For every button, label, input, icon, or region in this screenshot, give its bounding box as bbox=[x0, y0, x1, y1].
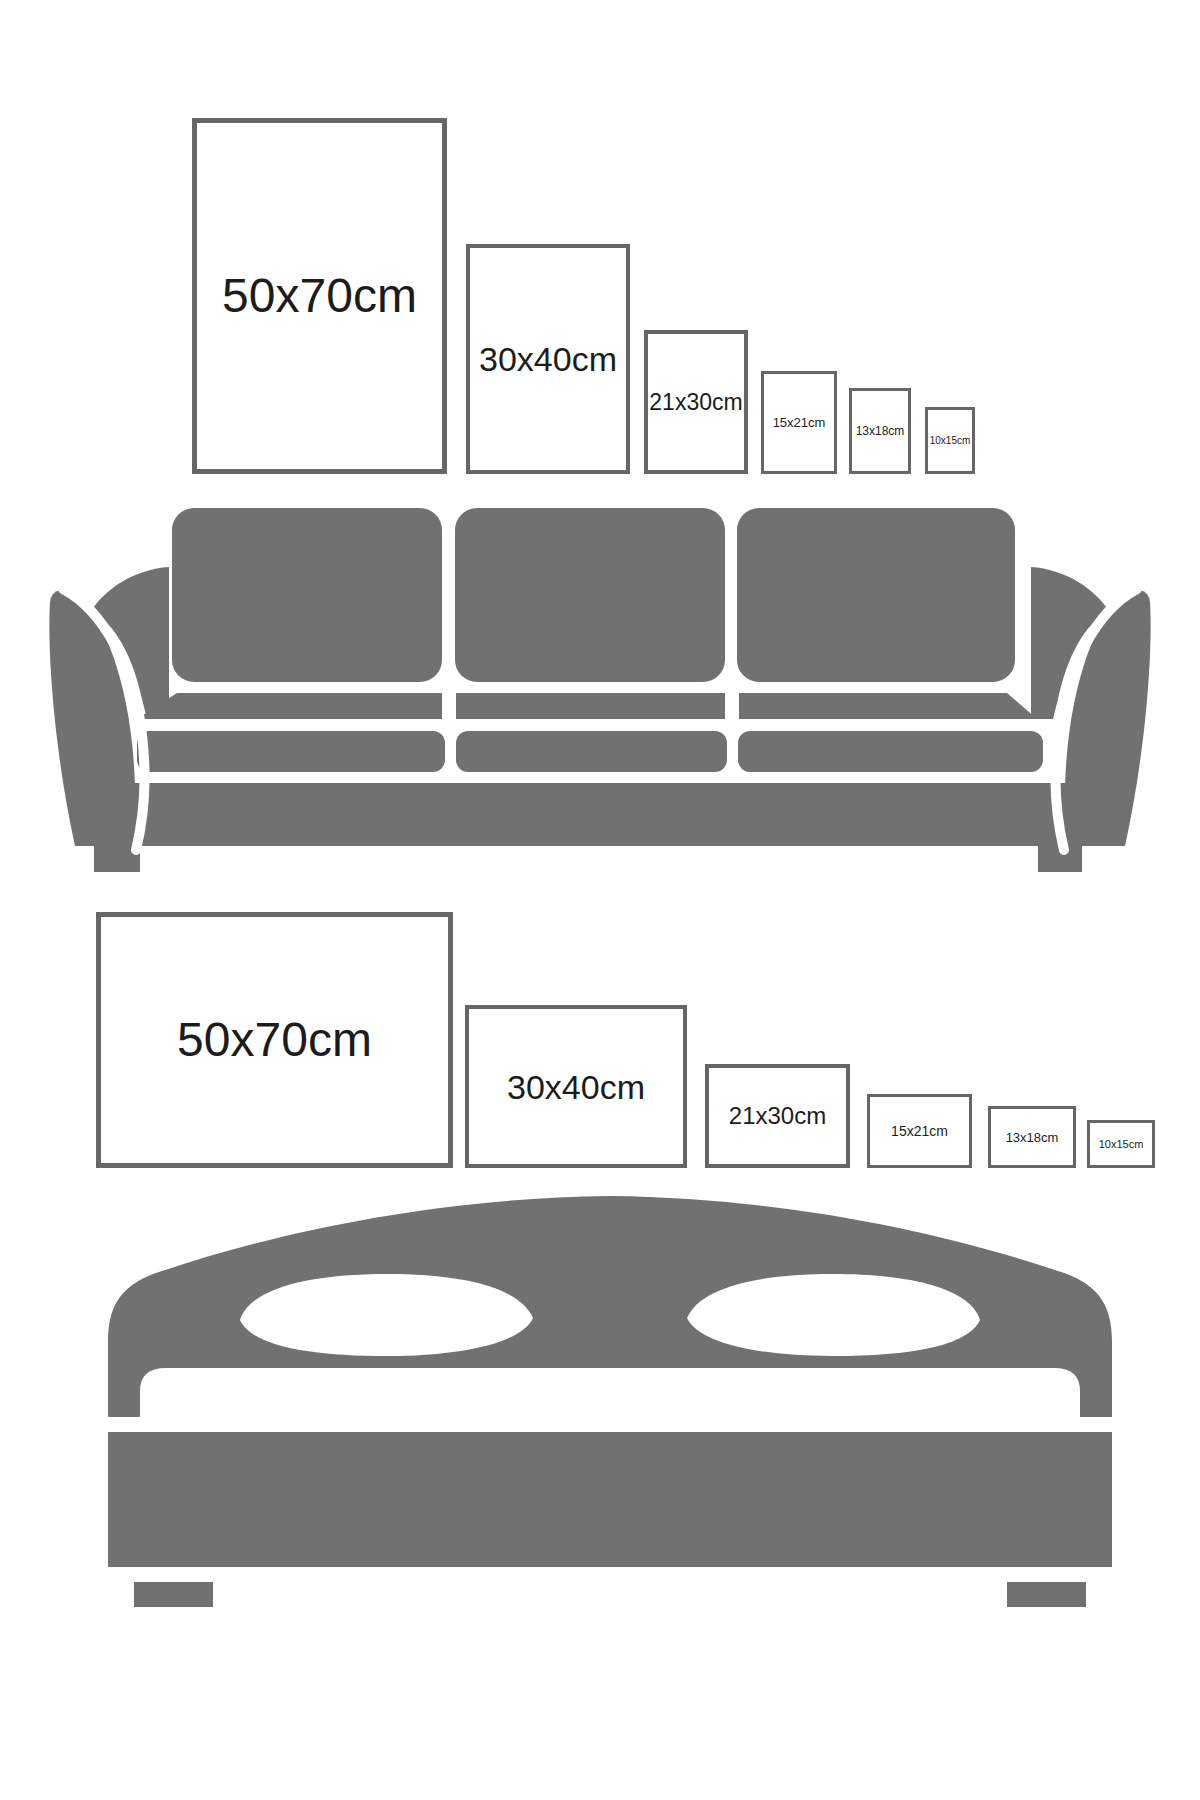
bed-base bbox=[108, 1432, 1112, 1567]
size-frame-landscape-50x70cm: 50x70cm bbox=[96, 912, 453, 1168]
size-label: 21x30cm bbox=[649, 391, 742, 414]
sofa-back-cushion bbox=[737, 508, 1015, 682]
size-label: 13x18cm bbox=[856, 425, 905, 437]
size-frame-portrait-21x30cm: 21x30cm bbox=[644, 330, 748, 474]
size-frame-landscape-10x15cm: 10x15cm bbox=[1087, 1120, 1155, 1168]
bed-mattress bbox=[140, 1368, 1080, 1430]
sofa-back-cushion bbox=[455, 508, 725, 682]
sofa-icon bbox=[47, 505, 1153, 872]
size-frame-landscape-15x21cm: 15x21cm bbox=[867, 1094, 972, 1168]
size-label: 10x15cm bbox=[1099, 1139, 1144, 1150]
sofa-back-cushion bbox=[172, 508, 442, 682]
sofa-deck-divider bbox=[725, 688, 739, 723]
size-frame-landscape-30x40cm: 30x40cm bbox=[465, 1005, 687, 1168]
size-label: 30x40cm bbox=[479, 342, 617, 376]
poster-size-guide: 50x70cm30x40cm21x30cm15x21cm13x18cm10x15… bbox=[0, 0, 1200, 1800]
size-label: 13x18cm bbox=[1006, 1131, 1059, 1144]
bed-foot-right bbox=[1007, 1582, 1086, 1607]
size-label: 30x40cm bbox=[507, 1070, 645, 1104]
bed-foot-left bbox=[134, 1582, 213, 1607]
size-label: 21x30cm bbox=[729, 1104, 826, 1128]
size-label: 15x21cm bbox=[891, 1124, 948, 1138]
size-label: 50x70cm bbox=[177, 1016, 372, 1064]
size-label: 10x15cm bbox=[930, 436, 971, 446]
sofa-seat-cushion bbox=[456, 731, 727, 772]
size-frame-landscape-21x30cm: 21x30cm bbox=[705, 1064, 850, 1168]
size-frame-portrait-13x18cm: 13x18cm bbox=[849, 388, 911, 474]
sofa-seat-cushion bbox=[738, 731, 1043, 772]
size-frame-portrait-30x40cm: 30x40cm bbox=[466, 244, 630, 474]
size-frame-portrait-10x15cm: 10x15cm bbox=[925, 407, 975, 474]
size-label: 15x21cm bbox=[773, 416, 826, 429]
sofa-base bbox=[125, 783, 1075, 846]
size-frame-portrait-15x21cm: 15x21cm bbox=[761, 371, 837, 474]
bed-icon bbox=[100, 1190, 1120, 1610]
sofa-seat-cushion bbox=[137, 731, 445, 772]
size-label: 50x70cm bbox=[222, 272, 417, 320]
size-frame-landscape-13x18cm: 13x18cm bbox=[988, 1106, 1076, 1168]
sofa-deck-divider bbox=[442, 688, 456, 723]
sofa-seat-deck bbox=[137, 693, 1037, 719]
size-frame-portrait-50x70cm: 50x70cm bbox=[192, 118, 447, 474]
